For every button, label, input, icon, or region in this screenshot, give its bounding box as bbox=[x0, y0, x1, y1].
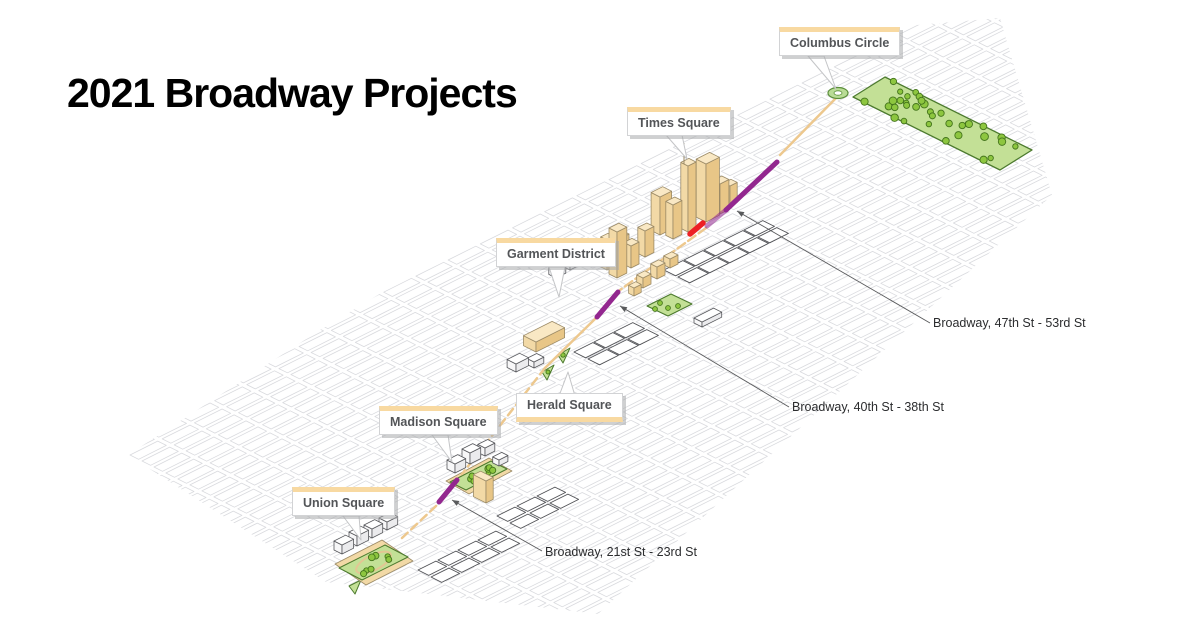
label-columbus-circle: Columbus Circle bbox=[779, 27, 900, 56]
central-park bbox=[853, 77, 1032, 170]
broadway-projects-map: 2021 Broadway Projects Columbus Circle T… bbox=[0, 0, 1197, 620]
label-garment-district: Garment District bbox=[496, 238, 616, 267]
page-title: 2021 Broadway Projects bbox=[67, 70, 517, 117]
columbus-circle-marker bbox=[828, 88, 848, 99]
label-herald-square: Herald Square bbox=[516, 393, 623, 422]
label-union-square: Union Square bbox=[292, 487, 395, 516]
label-times-square: Times Square bbox=[627, 107, 731, 136]
annotation-broadway-40-38: Broadway, 40th St - 38th St bbox=[792, 400, 944, 414]
annotation-broadway-21-23: Broadway, 21st St - 23rd St bbox=[545, 545, 697, 559]
label-madison-square: Madison Square bbox=[379, 406, 498, 435]
annotation-broadway-47-53: Broadway, 47th St - 53rd St bbox=[933, 316, 1086, 330]
